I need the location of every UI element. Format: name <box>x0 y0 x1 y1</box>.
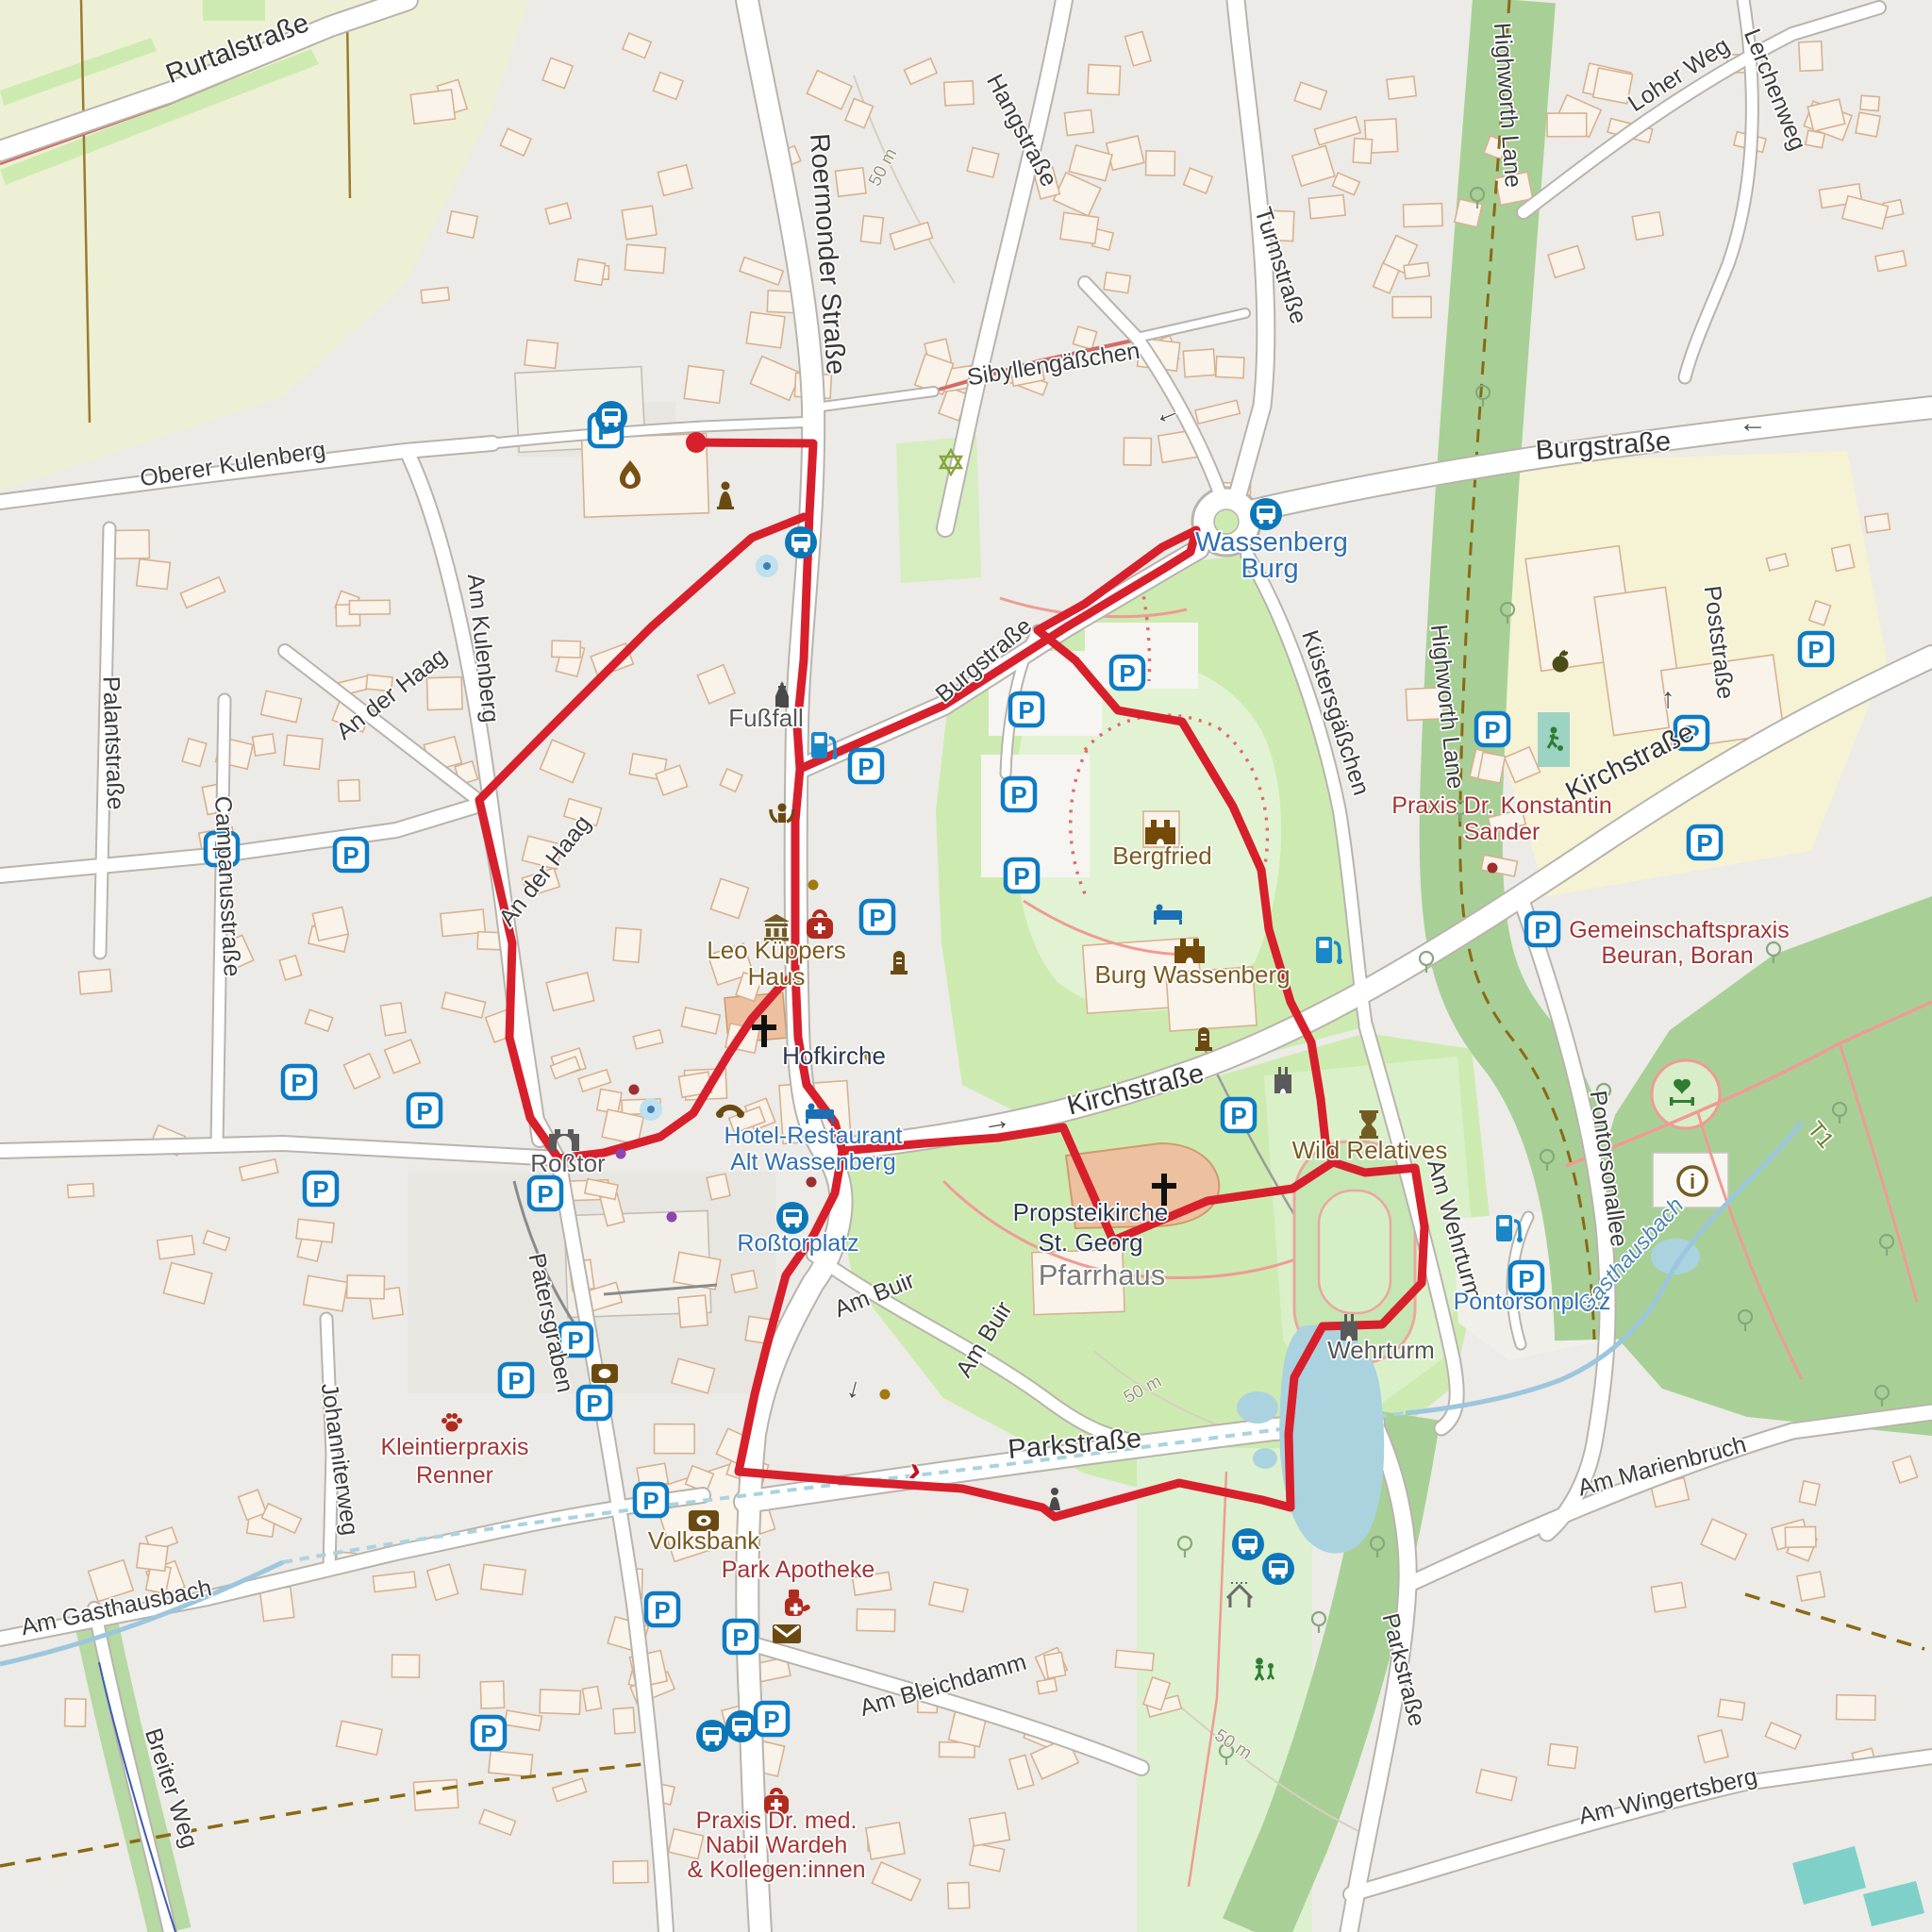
building <box>1548 1743 1578 1768</box>
dot-icon <box>629 1085 640 1095</box>
building <box>240 1159 278 1181</box>
building <box>613 927 641 962</box>
building <box>1044 1652 1066 1678</box>
tree-icon <box>1312 1612 1325 1633</box>
building <box>525 340 558 368</box>
building <box>304 1275 348 1311</box>
roßtor-label: Roßtor <box>530 1149 606 1177</box>
building <box>1124 438 1151 465</box>
parking-icon <box>305 1173 337 1205</box>
building <box>653 73 683 100</box>
building <box>655 1424 695 1454</box>
building <box>337 1721 382 1755</box>
dot-icon <box>1488 863 1498 874</box>
paw-icon <box>441 1413 462 1432</box>
sander-label: Sander <box>1464 819 1541 845</box>
building <box>203 1230 229 1250</box>
parking-icon <box>408 1094 441 1126</box>
building <box>137 1543 168 1571</box>
building <box>380 1003 406 1036</box>
building <box>1392 296 1431 317</box>
haus-label: Haus <box>748 962 806 991</box>
kleintierpraxis-label: Kleintierpraxis <box>380 1434 528 1460</box>
building <box>750 357 801 401</box>
building <box>1064 109 1093 135</box>
propsteikirche-label: Propsteikirche <box>1013 1198 1169 1226</box>
building <box>137 559 171 590</box>
building <box>707 1174 730 1200</box>
building <box>613 1707 635 1734</box>
building <box>542 58 573 88</box>
parking-icon <box>756 1703 788 1735</box>
bus-icon <box>595 401 627 433</box>
building <box>410 90 455 124</box>
atm-icon <box>591 1364 618 1383</box>
building <box>312 908 348 941</box>
gemeinschaftspraxis-label: Gemeinschaftspraxis <box>1569 917 1789 943</box>
burg-wassenberg-label: Burg Wassenberg <box>1094 960 1290 989</box>
building <box>1195 400 1240 424</box>
building <box>1387 76 1416 99</box>
parking-icon <box>335 839 367 871</box>
bus-icon <box>725 1710 758 1742</box>
building <box>578 1070 610 1091</box>
alt-wassenberg-label: Alt Wassenberg <box>730 1149 896 1175</box>
building <box>720 769 742 791</box>
building <box>929 1582 968 1612</box>
building <box>1875 251 1907 272</box>
building <box>1125 31 1151 65</box>
track-dashed <box>1745 1594 1924 1649</box>
building <box>540 1690 580 1714</box>
parking-icon <box>1223 1099 1255 1131</box>
dot-icon <box>667 1212 677 1223</box>
monument-icon <box>891 951 908 974</box>
parking-icon <box>529 1177 561 1209</box>
parking-icon <box>646 1593 678 1625</box>
parking-icon <box>500 1364 532 1396</box>
building <box>1292 146 1335 187</box>
bus-icon <box>785 526 817 558</box>
park-apotheke-label: Park Apotheke <box>722 1557 875 1583</box>
building <box>553 1778 587 1801</box>
building <box>622 206 657 240</box>
building <box>279 956 301 980</box>
building <box>1799 42 1823 72</box>
nabil-wardeh-label: Nabil Wardeh <box>706 1832 848 1858</box>
building <box>1404 262 1429 278</box>
building <box>905 58 938 85</box>
building <box>1765 1723 1801 1749</box>
building <box>857 1609 895 1632</box>
building <box>1009 1755 1034 1789</box>
track-dashed <box>0 1762 660 1866</box>
parking-icon <box>635 1484 667 1516</box>
kollegen-innen-label: & Kollegen:innen <box>687 1857 865 1883</box>
building <box>1216 357 1244 378</box>
an-der-haag-label: An der Haag <box>493 810 595 931</box>
building <box>845 98 873 127</box>
building <box>1785 1526 1816 1547</box>
building <box>625 244 665 273</box>
building <box>480 1681 504 1708</box>
building <box>710 878 748 918</box>
building <box>1107 136 1144 170</box>
building <box>1184 168 1213 193</box>
parking-icon <box>850 750 882 782</box>
building <box>944 81 974 106</box>
50-m-label: 50 m <box>865 145 901 190</box>
parking-icon <box>1689 826 1721 858</box>
building <box>182 739 207 766</box>
building <box>1104 273 1130 293</box>
pool-area <box>1792 1846 1866 1905</box>
building <box>427 677 463 710</box>
building <box>1308 195 1345 219</box>
parking-icon <box>724 1621 757 1653</box>
pfarrhaus-label: Pfarrhaus <box>1039 1258 1165 1291</box>
building <box>746 312 785 348</box>
running-track-inner <box>1319 1191 1391 1313</box>
building <box>872 1862 920 1901</box>
parking-icon <box>1476 713 1508 745</box>
route-start-dot <box>686 432 707 453</box>
building <box>296 1219 334 1242</box>
building <box>338 780 359 802</box>
parking-icon <box>578 1387 610 1419</box>
building <box>970 1843 1005 1872</box>
pharmacy-icon <box>785 1590 811 1616</box>
building <box>1183 349 1215 377</box>
building <box>613 1861 648 1884</box>
building <box>158 1236 195 1259</box>
bus-icon <box>1250 498 1282 530</box>
-label: ↓ <box>843 1372 865 1406</box>
building <box>1069 145 1112 181</box>
gate-icon <box>549 1129 579 1151</box>
building <box>1832 544 1855 571</box>
building <box>948 1882 970 1908</box>
pond <box>1253 1448 1277 1469</box>
building <box>1403 204 1442 227</box>
dot-icon <box>808 880 819 891</box>
building <box>68 1184 94 1198</box>
building <box>582 1687 601 1711</box>
building <box>575 259 605 286</box>
building <box>890 223 932 250</box>
building <box>481 1564 526 1594</box>
building <box>1353 139 1372 164</box>
building <box>658 165 692 195</box>
leo-küppers-label: Leo Küppers <box>707 936 845 964</box>
oberer-kulenberg-label: Oberer Kulenberg <box>138 437 327 492</box>
building <box>305 1009 332 1031</box>
statue-gray-icon <box>1049 1488 1060 1510</box>
building <box>78 970 111 994</box>
-label: → <box>980 1104 1013 1140</box>
parking-icon <box>473 1717 505 1749</box>
building <box>1856 112 1880 137</box>
building <box>1476 1770 1517 1801</box>
roßtorplatz-label: Roßtorplatz <box>737 1230 858 1257</box>
parking-icon <box>1526 913 1558 945</box>
roundabout-nw-casing <box>1085 283 1219 491</box>
parking-icon <box>861 901 893 933</box>
building <box>546 973 594 1010</box>
building <box>1547 113 1587 137</box>
building <box>835 168 866 197</box>
dot-icon <box>807 1177 817 1188</box>
building <box>347 1275 385 1299</box>
building <box>343 1054 379 1089</box>
renner-label: Renner <box>416 1462 493 1489</box>
building <box>1088 64 1121 94</box>
praxis-dr-konstantin-label: Praxis Dr. Konstantin <box>1391 792 1611 819</box>
building <box>413 1779 458 1809</box>
building <box>261 691 302 722</box>
fountain-icon <box>756 555 778 577</box>
building <box>1842 196 1889 229</box>
st-georg-label: St. Georg <box>1038 1228 1142 1257</box>
building <box>505 1710 541 1730</box>
parking-icon <box>1006 859 1038 891</box>
burg-label: Burg <box>1241 554 1298 584</box>
building <box>1146 151 1175 175</box>
building <box>623 33 651 58</box>
dot-icon <box>616 1149 626 1159</box>
building <box>1799 1481 1820 1506</box>
pond <box>1237 1391 1278 1424</box>
building <box>421 288 449 304</box>
building <box>678 1295 708 1327</box>
building <box>552 641 581 658</box>
beuran-boran-label: Beuran, Boran <box>1601 942 1753 969</box>
building <box>1865 513 1890 532</box>
-label: ← <box>1739 408 1767 439</box>
building <box>1548 245 1585 277</box>
fußfall-label: Fußfall <box>728 704 803 732</box>
clinic-icon <box>807 911 833 939</box>
building <box>697 665 735 704</box>
building <box>180 577 225 608</box>
building <box>1701 1519 1746 1559</box>
building <box>1797 1572 1825 1601</box>
-label: ↑ <box>1661 683 1675 714</box>
building <box>740 258 783 285</box>
building <box>633 1030 662 1049</box>
building <box>489 1751 533 1777</box>
parking-icon <box>1111 657 1143 689</box>
wild-relatives-label: Wild Relatives <box>1292 1136 1448 1164</box>
building <box>163 1262 211 1304</box>
fuel-icon <box>811 732 838 759</box>
hotel-restaurant-label: Hotel-Restaurant <box>724 1123 903 1149</box>
building <box>114 530 150 558</box>
wehrturm-label: Wehrturm <box>1327 1336 1435 1364</box>
pool-area <box>1863 1881 1924 1926</box>
map-svg: P <box>0 0 1932 1932</box>
building <box>545 203 571 224</box>
hofkirche-label: Hofkirche <box>782 1041 886 1070</box>
building <box>500 128 531 156</box>
info-icon <box>1678 1167 1707 1195</box>
building <box>391 1655 419 1677</box>
building <box>1037 1678 1057 1694</box>
building <box>1332 173 1359 195</box>
bus-icon <box>776 1202 808 1234</box>
building <box>684 366 724 403</box>
map-canvas[interactable]: P <box>0 0 1932 1932</box>
parking-icon <box>1003 778 1035 810</box>
bergfried-label: Bergfried <box>1112 841 1212 870</box>
building <box>540 740 584 782</box>
volksbank-label: Volksbank <box>648 1526 761 1555</box>
am-wingertsberg-label: Am Wingertsberg <box>1576 1763 1759 1830</box>
sibyllen-lane <box>1137 313 1245 338</box>
building <box>1892 1456 1917 1483</box>
building <box>860 216 883 243</box>
building <box>731 1271 757 1292</box>
building <box>441 992 485 1018</box>
building <box>284 735 323 769</box>
palantstraße-label: Palantstraße <box>98 675 129 810</box>
green-plot-area <box>203 0 265 21</box>
parking-icon <box>1800 633 1832 665</box>
building <box>1718 1699 1744 1720</box>
building <box>1115 1650 1154 1670</box>
building <box>385 1040 421 1074</box>
praxis-dr-med-label: Praxis Dr. med. <box>696 1807 858 1834</box>
building <box>253 734 275 756</box>
building <box>1860 95 1879 110</box>
building <box>967 148 999 177</box>
building <box>479 1809 515 1835</box>
phone-icon <box>716 1108 744 1118</box>
bus-icon <box>1262 1553 1294 1585</box>
statue-icon <box>717 482 734 510</box>
building <box>1632 212 1663 241</box>
building <box>1651 1582 1686 1611</box>
building <box>1060 212 1099 243</box>
building <box>65 1699 86 1727</box>
bus-icon <box>696 1720 728 1752</box>
building <box>866 1823 905 1859</box>
dot-icon <box>880 1390 891 1400</box>
building <box>1478 752 1506 783</box>
building <box>427 1564 458 1600</box>
bus-icon <box>1232 1528 1264 1560</box>
building <box>681 1008 720 1034</box>
building <box>373 1572 415 1591</box>
building <box>1698 1730 1728 1762</box>
west-street <box>0 804 483 875</box>
building <box>1294 82 1326 109</box>
building <box>349 600 390 614</box>
building <box>970 1812 1010 1845</box>
building <box>447 211 477 238</box>
building <box>807 71 852 109</box>
fountain-icon <box>640 1098 662 1121</box>
parking-icon <box>1010 693 1042 725</box>
mail-icon <box>773 1624 801 1643</box>
building <box>1837 1695 1876 1721</box>
park-east-area <box>1587 896 1932 1436</box>
johanniterweg-label: Johanniterweg <box>316 1381 363 1537</box>
parking-icon <box>283 1066 315 1098</box>
